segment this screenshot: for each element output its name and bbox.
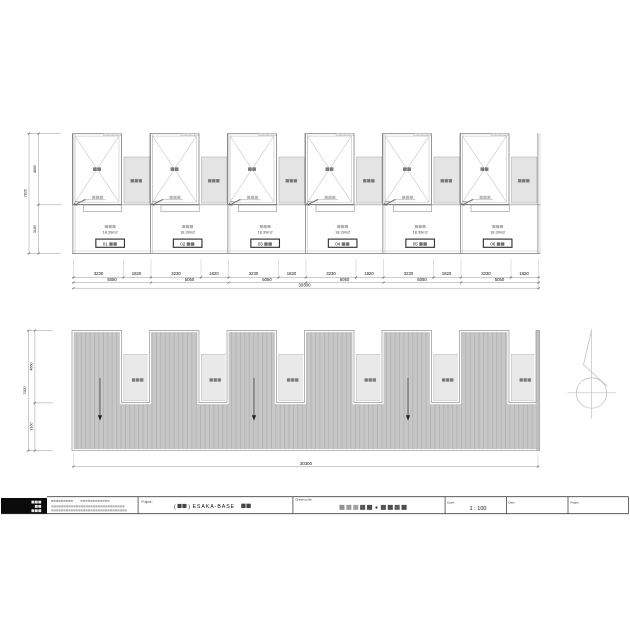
- svg-text:18.39m2: 18.39m2: [413, 230, 428, 235]
- svg-text:ESAKA-BASE: ESAKA-BASE: [193, 504, 236, 510]
- svg-text:1820: 1820: [132, 271, 142, 276]
- svg-text:30300: 30300: [299, 283, 312, 288]
- svg-text:03: 03: [258, 241, 264, 246]
- svg-text:18.39m2: 18.39m2: [335, 230, 350, 235]
- svg-text:3230: 3230: [171, 271, 181, 276]
- svg-text:5050: 5050: [262, 277, 272, 282]
- svg-text:Project :: Project :: [142, 500, 154, 504]
- svg-text:Drawing title: Drawing title: [296, 498, 313, 502]
- svg-text:3230: 3230: [404, 271, 414, 276]
- svg-text:1 : 100: 1 : 100: [469, 506, 486, 512]
- svg-text:5050: 5050: [185, 277, 195, 282]
- svg-text:7820: 7820: [24, 189, 28, 197]
- svg-text:3230: 3230: [249, 271, 259, 276]
- svg-text:1820: 1820: [519, 271, 529, 276]
- svg-text:06: 06: [490, 241, 496, 246]
- svg-text:7820: 7820: [23, 386, 27, 394]
- svg-text:3230: 3230: [94, 271, 104, 276]
- svg-text:18.39m2: 18.39m2: [103, 230, 118, 235]
- svg-text:1820: 1820: [442, 271, 452, 276]
- svg-text:(: (: [174, 504, 176, 510]
- svg-text:3230: 3230: [481, 271, 491, 276]
- svg-text:5050: 5050: [107, 277, 117, 282]
- svg-text:02: 02: [180, 241, 186, 246]
- svg-text:4660: 4660: [30, 362, 34, 370]
- svg-text:4660: 4660: [33, 165, 37, 173]
- svg-text:1820: 1820: [287, 271, 297, 276]
- svg-text:30300: 30300: [300, 461, 313, 466]
- svg-text:5050: 5050: [495, 277, 505, 282]
- svg-text:18.39m2: 18.39m2: [490, 230, 505, 235]
- svg-text:Date: Date: [508, 500, 515, 504]
- svg-text:1820: 1820: [209, 271, 219, 276]
- svg-text:5050: 5050: [417, 277, 427, 282]
- svg-text:5050: 5050: [340, 277, 350, 282]
- svg-text:Pages: Pages: [570, 500, 579, 504]
- svg-text:): ): [188, 504, 190, 510]
- svg-text:04: 04: [335, 241, 341, 246]
- svg-text:01: 01: [103, 241, 109, 246]
- svg-text:1820: 1820: [364, 271, 374, 276]
- svg-text:18.39m2: 18.39m2: [180, 230, 195, 235]
- svg-text:3160: 3160: [30, 422, 34, 430]
- svg-text:05: 05: [413, 241, 419, 246]
- svg-text:3230: 3230: [326, 271, 336, 276]
- svg-text:3160: 3160: [33, 225, 37, 233]
- svg-text:Scale: Scale: [447, 501, 455, 505]
- svg-text:18.39m2: 18.39m2: [258, 230, 273, 235]
